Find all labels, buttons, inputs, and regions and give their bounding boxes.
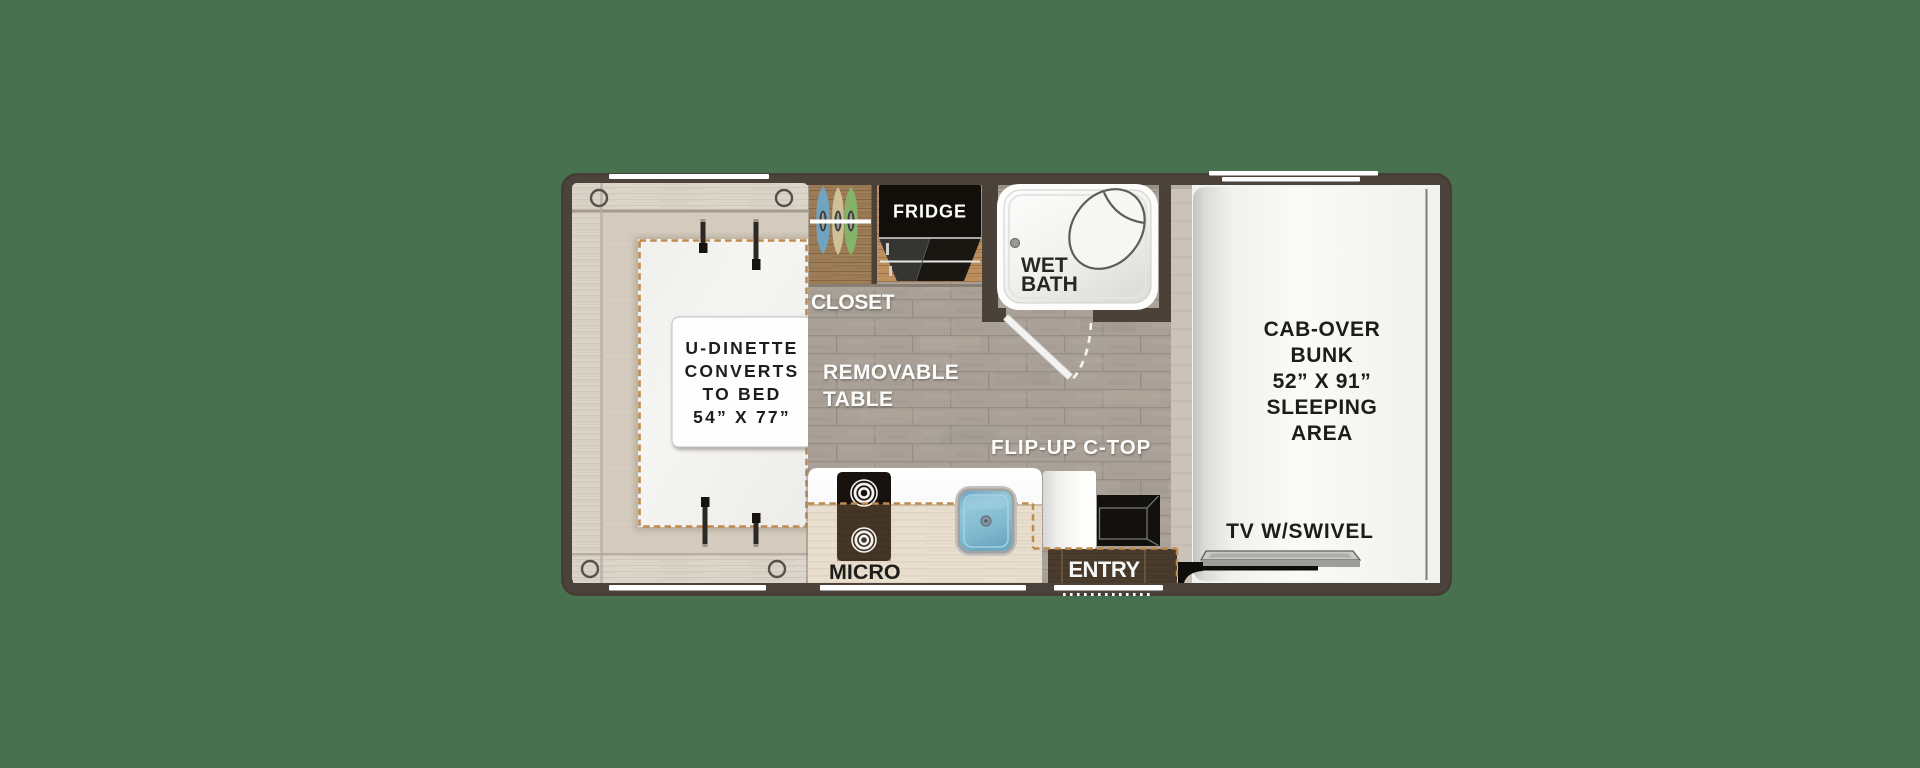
svg-text:TV W/SWIVEL: TV W/SWIVEL <box>1226 520 1374 543</box>
svg-text:AREA: AREA <box>1291 422 1353 445</box>
svg-text:FRIDGE: FRIDGE <box>893 202 967 222</box>
svg-text:CAB-OVER: CAB-OVER <box>1264 318 1381 341</box>
svg-text:TO BED: TO BED <box>703 384 782 404</box>
svg-text:FLIP-UP C-TOP: FLIP-UP C-TOP <box>991 436 1151 459</box>
svg-text:ENTRY: ENTRY <box>1068 557 1140 582</box>
svg-text:52” X 91”: 52” X 91” <box>1273 370 1372 393</box>
svg-text:REMOVABLE: REMOVABLE <box>823 361 959 384</box>
svg-text:SLEEPING: SLEEPING <box>1267 396 1378 419</box>
svg-text:54” X 77”: 54” X 77” <box>693 407 791 427</box>
svg-text:CONVERTS: CONVERTS <box>685 361 800 381</box>
svg-text:BATH: BATH <box>1021 273 1078 296</box>
svg-text:U-DINETTE: U-DINETTE <box>685 338 798 358</box>
svg-text:CLOSET: CLOSET <box>811 291 895 314</box>
svg-text:MICRO: MICRO <box>829 560 901 584</box>
svg-text:BUNK: BUNK <box>1290 344 1353 367</box>
svg-text:TABLE: TABLE <box>823 388 893 411</box>
